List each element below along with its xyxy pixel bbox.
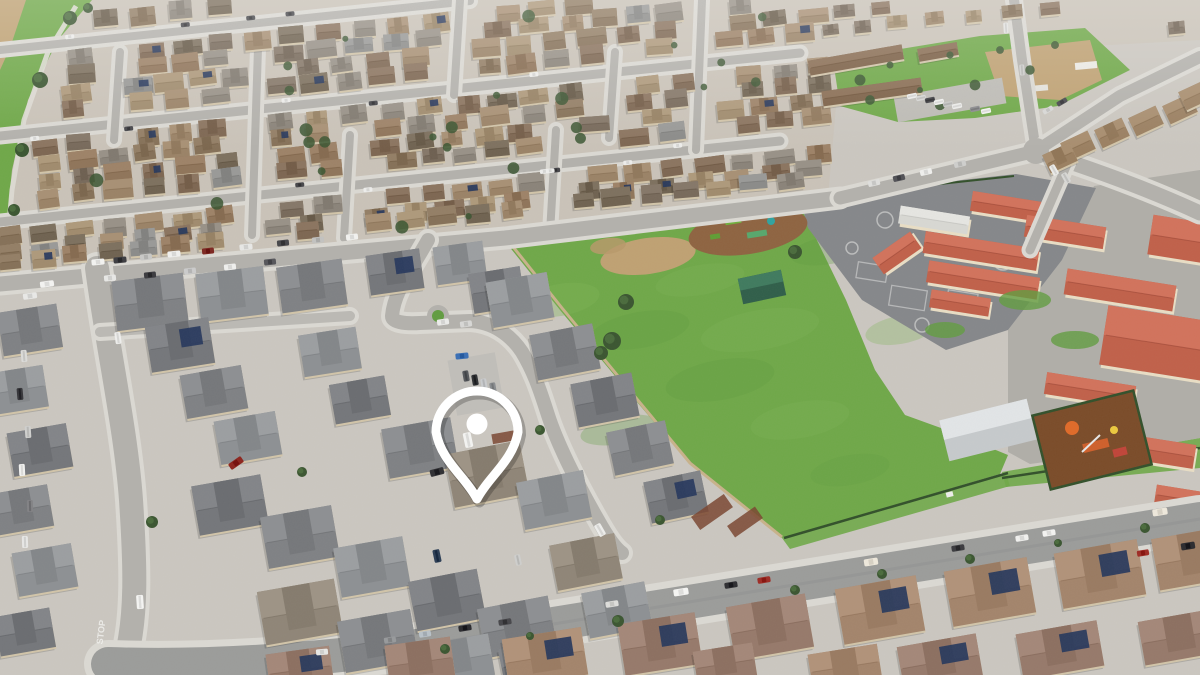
roof-gable <box>286 161 298 175</box>
campus-lawn <box>999 290 1051 310</box>
solar-panels <box>44 252 53 260</box>
tree <box>877 569 887 579</box>
house <box>363 212 392 235</box>
tract-tree <box>211 197 224 210</box>
car-glass <box>96 260 101 265</box>
car-glass <box>460 354 465 359</box>
campus-lawn <box>1051 331 1099 349</box>
car <box>316 648 328 655</box>
play-structure <box>767 217 775 225</box>
roof-gable <box>108 148 120 161</box>
house <box>29 249 57 272</box>
tree <box>612 615 624 627</box>
house <box>274 161 307 183</box>
tree-highlight <box>595 347 603 355</box>
car-glass <box>172 252 177 257</box>
car-glass <box>24 537 26 547</box>
tree-highlight <box>620 296 629 305</box>
car <box>27 500 33 512</box>
car-glass <box>388 638 393 643</box>
screenshot-stage: STOP <box>0 0 1200 675</box>
tree-highlight <box>298 468 304 474</box>
car-glass <box>626 161 629 164</box>
tree-highlight <box>656 516 662 522</box>
car <box>25 426 32 438</box>
solar-panels <box>178 227 188 234</box>
car <box>202 247 215 254</box>
roof-gable <box>70 245 80 259</box>
roof-gable <box>830 647 859 675</box>
roof-gable <box>138 240 148 252</box>
car-glass <box>144 255 148 260</box>
house <box>571 192 595 211</box>
car-glass <box>464 322 469 327</box>
tree-highlight <box>791 586 797 592</box>
roof-gable <box>182 213 193 225</box>
roof-gable <box>205 232 215 246</box>
tree <box>8 204 20 216</box>
car-glass <box>148 273 152 278</box>
house <box>142 177 166 198</box>
car <box>19 464 26 476</box>
car-glass <box>423 632 428 637</box>
roof-gable <box>396 152 408 165</box>
car <box>623 160 632 165</box>
house <box>175 173 200 196</box>
house <box>704 180 731 199</box>
house <box>263 218 292 238</box>
tree <box>790 585 800 595</box>
haze-overlay <box>0 0 1200 150</box>
house <box>274 259 348 317</box>
tree <box>526 632 534 640</box>
tree <box>146 516 158 528</box>
car-glass <box>118 258 123 263</box>
roof-gable <box>170 236 181 250</box>
car <box>264 258 277 265</box>
house <box>70 182 95 204</box>
house <box>598 186 632 210</box>
roof-gable <box>297 262 326 302</box>
tree-highlight <box>527 633 531 637</box>
house <box>100 178 134 203</box>
tree <box>603 332 621 350</box>
solar-panels <box>659 622 688 647</box>
roof-gable <box>80 168 89 181</box>
car-glass <box>441 320 446 325</box>
house <box>0 304 64 360</box>
car-glass <box>610 601 615 606</box>
tree-highlight <box>605 334 615 344</box>
car <box>20 350 27 362</box>
house <box>311 195 343 217</box>
house <box>736 173 767 193</box>
tract-tree <box>465 213 471 219</box>
roof-gable <box>220 167 232 183</box>
tree-highlight <box>147 517 154 524</box>
house <box>0 365 49 419</box>
car <box>22 536 28 548</box>
car-glass <box>463 625 468 630</box>
house <box>658 158 683 181</box>
solar-panels <box>878 586 909 613</box>
car-glass <box>1185 543 1190 549</box>
car-glass <box>366 188 369 191</box>
tree-highlight <box>441 645 447 651</box>
car-glass <box>350 235 354 240</box>
tract-tree <box>318 167 326 175</box>
car-glass <box>762 577 767 582</box>
car <box>277 239 290 246</box>
house <box>296 327 362 381</box>
tree <box>788 245 802 259</box>
tract-tree <box>89 173 103 187</box>
house <box>639 184 663 207</box>
car-glass <box>228 265 232 270</box>
tree <box>1054 539 1062 547</box>
roof-gable <box>785 172 796 186</box>
car <box>363 187 372 192</box>
aerial-photo: STOP <box>0 0 1200 675</box>
car-glass <box>206 249 210 254</box>
solar-panels <box>299 653 323 672</box>
car <box>295 182 304 187</box>
car-glass <box>316 238 320 243</box>
car-glass <box>244 245 249 250</box>
tree <box>965 554 975 564</box>
house <box>363 248 424 298</box>
roof-gable <box>632 163 643 178</box>
car-glass <box>44 281 49 286</box>
house <box>775 171 806 193</box>
car <box>16 388 23 400</box>
car-glass <box>268 260 272 265</box>
car-glass <box>320 650 324 655</box>
car-glass <box>29 501 31 511</box>
house <box>499 200 524 222</box>
solar-panels <box>662 181 671 188</box>
campus-lawn <box>925 322 965 338</box>
car <box>224 263 237 270</box>
house <box>60 244 87 266</box>
roof-gable <box>184 174 193 189</box>
car <box>140 253 153 260</box>
solar-panels <box>153 165 161 173</box>
tree-highlight <box>613 616 620 623</box>
car-glass <box>188 269 192 274</box>
play-structure <box>1065 421 1079 435</box>
car <box>104 274 117 281</box>
tree-highlight <box>536 426 542 432</box>
car-glass <box>1047 530 1052 535</box>
house <box>421 184 446 205</box>
car <box>540 169 549 174</box>
tree <box>440 644 450 654</box>
car-glass <box>298 183 301 186</box>
house <box>27 223 57 246</box>
solar-panels <box>467 184 478 191</box>
tree <box>655 515 665 525</box>
solar-panels <box>179 326 203 348</box>
tree <box>535 425 545 435</box>
car-glass <box>1141 551 1146 556</box>
tree-highlight <box>878 570 884 576</box>
roof-gable <box>405 640 433 675</box>
car-glass <box>543 170 546 173</box>
tree <box>1140 523 1150 533</box>
house <box>671 181 700 202</box>
car-glass <box>281 241 285 246</box>
house <box>143 317 216 376</box>
roof-gable <box>134 276 165 319</box>
pin-center-dot[interactable] <box>467 414 488 435</box>
car <box>312 236 325 243</box>
car-glass <box>729 582 734 587</box>
car-glass <box>27 293 32 298</box>
tree-highlight <box>966 555 972 561</box>
car-glass <box>1020 535 1025 540</box>
tree-highlight <box>9 205 16 212</box>
roof-gable <box>712 646 738 675</box>
car-glass <box>108 276 112 281</box>
tract-tree <box>395 220 408 233</box>
roof-gable <box>217 269 246 310</box>
roof-gable <box>79 183 88 197</box>
car-glass <box>678 589 684 595</box>
car <box>184 267 197 274</box>
roof-gable <box>45 174 54 187</box>
tree-highlight <box>1141 524 1147 530</box>
tree <box>297 467 307 477</box>
tree <box>594 346 608 360</box>
car <box>346 233 359 240</box>
car-glass <box>868 559 873 565</box>
car-glass <box>1157 509 1163 515</box>
house <box>36 154 61 175</box>
car <box>136 595 144 609</box>
house <box>209 166 242 191</box>
tree-highlight <box>789 246 797 254</box>
tree <box>618 294 634 310</box>
tract-tree <box>507 162 519 174</box>
house <box>0 253 22 273</box>
roof-gable <box>322 195 333 209</box>
house <box>425 205 458 229</box>
tree-highlight <box>1055 540 1059 544</box>
car <box>144 271 157 278</box>
house <box>385 152 418 173</box>
solar-panels <box>394 256 414 274</box>
car-glass <box>503 619 508 624</box>
house <box>35 188 60 212</box>
car-glass <box>956 545 961 550</box>
play-structure <box>1110 426 1118 434</box>
house <box>193 266 269 325</box>
